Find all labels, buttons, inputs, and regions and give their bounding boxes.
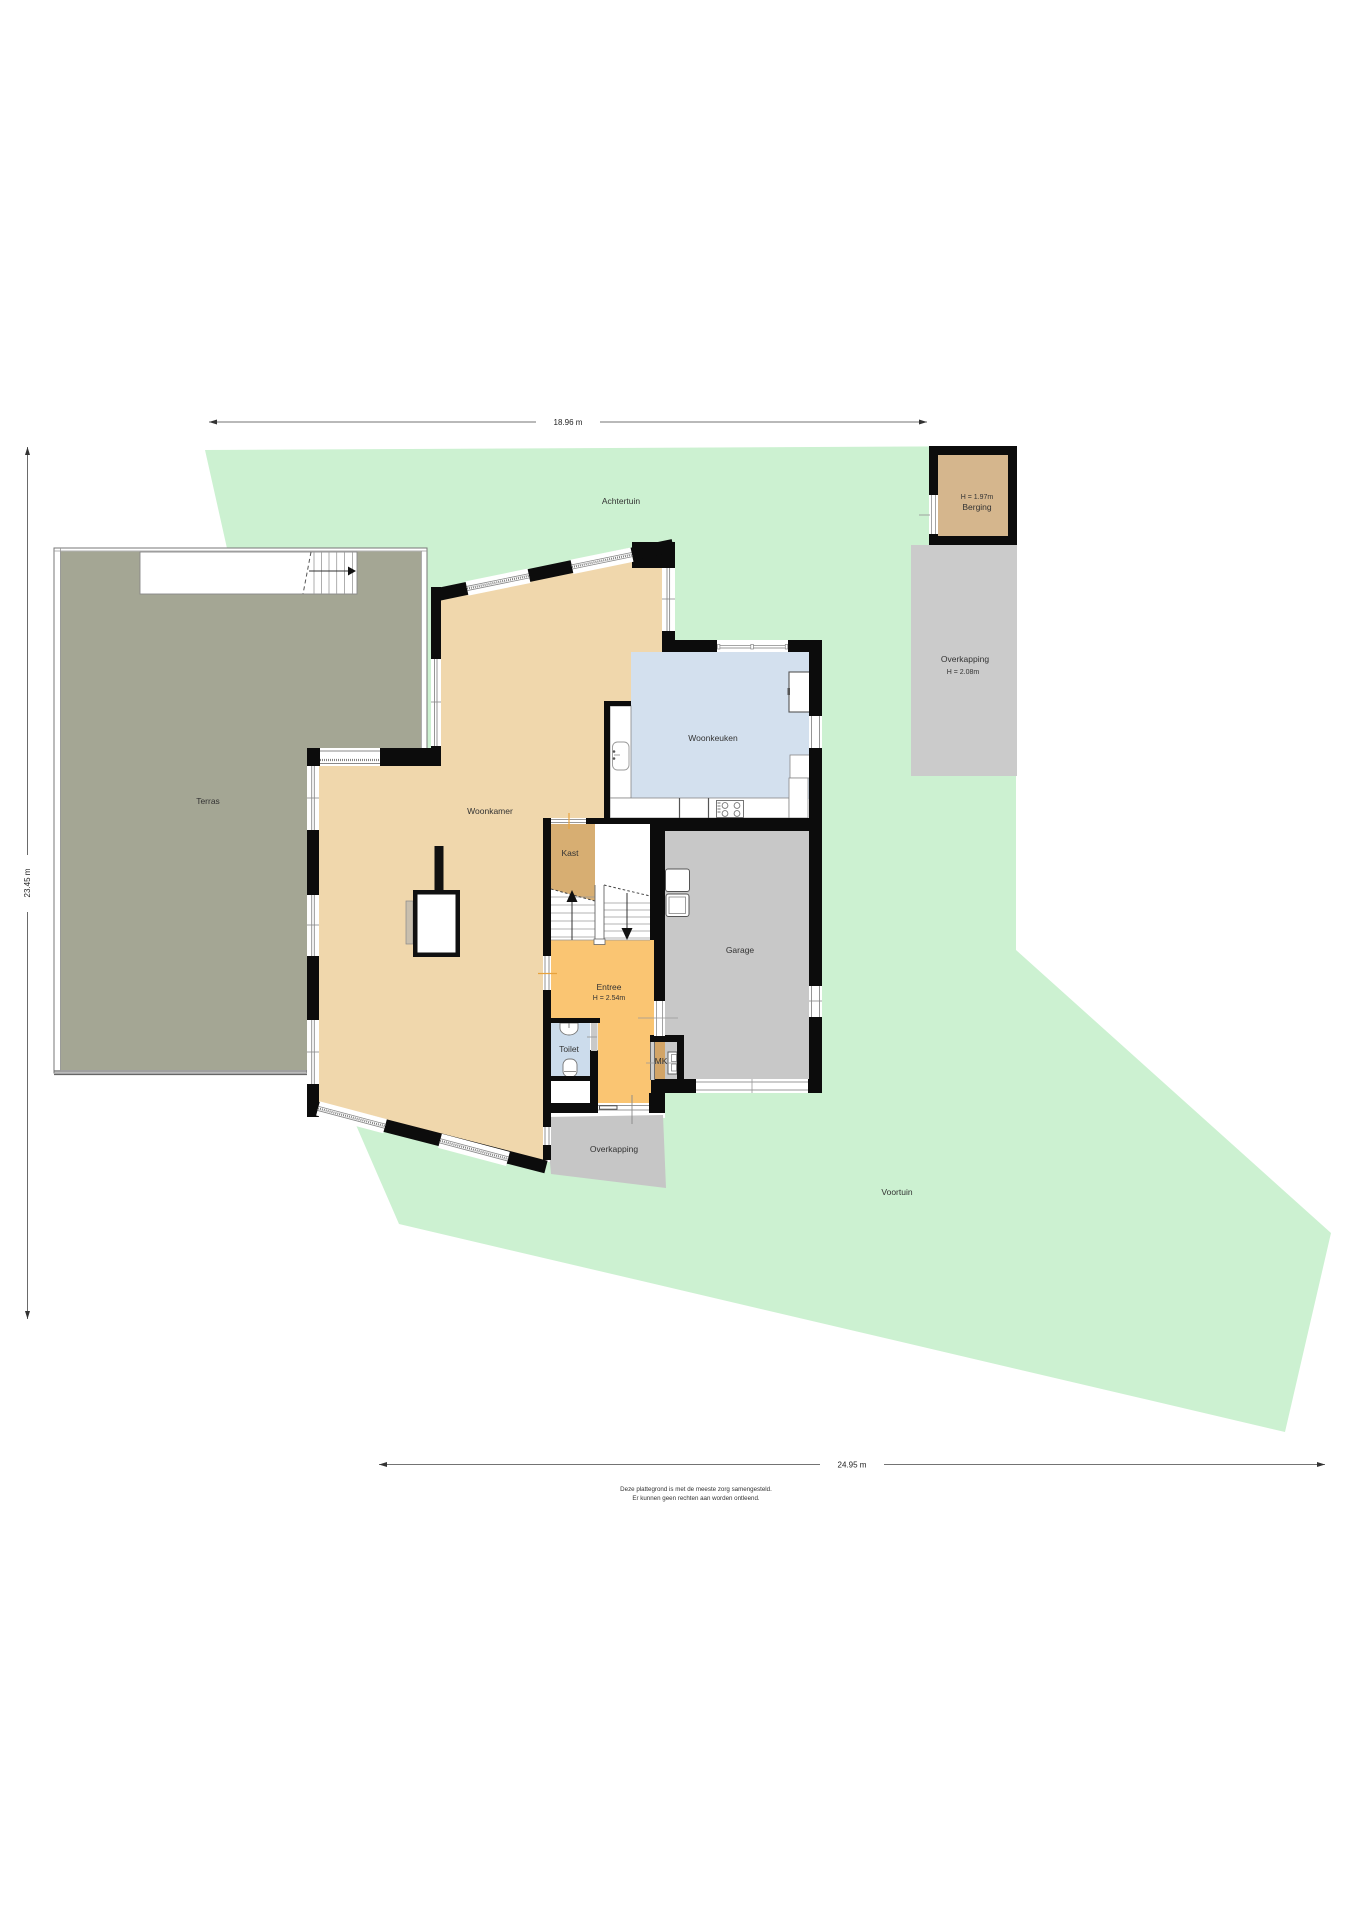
svg-text:H = 1.97m: H = 1.97m [961,494,994,501]
svg-text:Garage: Garage [726,945,755,955]
svg-text:Voortuin: Voortuin [881,1187,912,1197]
svg-text:MK: MK [655,1056,668,1066]
svg-text:Overkapping: Overkapping [590,1144,638,1154]
svg-text:Toilet: Toilet [559,1044,579,1054]
svg-text:23.45 m: 23.45 m [23,868,32,897]
svg-text:Entree: Entree [596,982,621,992]
svg-text:Terras: Terras [196,796,220,806]
svg-text:Woonkeuken: Woonkeuken [688,733,738,743]
svg-text:24.95 m: 24.95 m [838,1461,867,1470]
svg-text:18.96 m: 18.96 m [554,418,583,427]
svg-text:Woonkamer: Woonkamer [467,806,513,816]
svg-text:Overkapping: Overkapping [941,654,989,664]
svg-text:H = 2.08m: H = 2.08m [947,669,980,676]
svg-text:Deze plattegrond is met de mee: Deze plattegrond is met de meeste zorg s… [620,1486,772,1493]
svg-text:Kast: Kast [561,848,579,858]
svg-text:Er kunnen geen rechten aan wor: Er kunnen geen rechten aan worden ontlee… [632,1495,760,1502]
svg-text:Achtertuin: Achtertuin [602,496,641,506]
svg-text:Berging: Berging [962,502,992,512]
svg-text:H = 2.54m: H = 2.54m [593,995,626,1002]
